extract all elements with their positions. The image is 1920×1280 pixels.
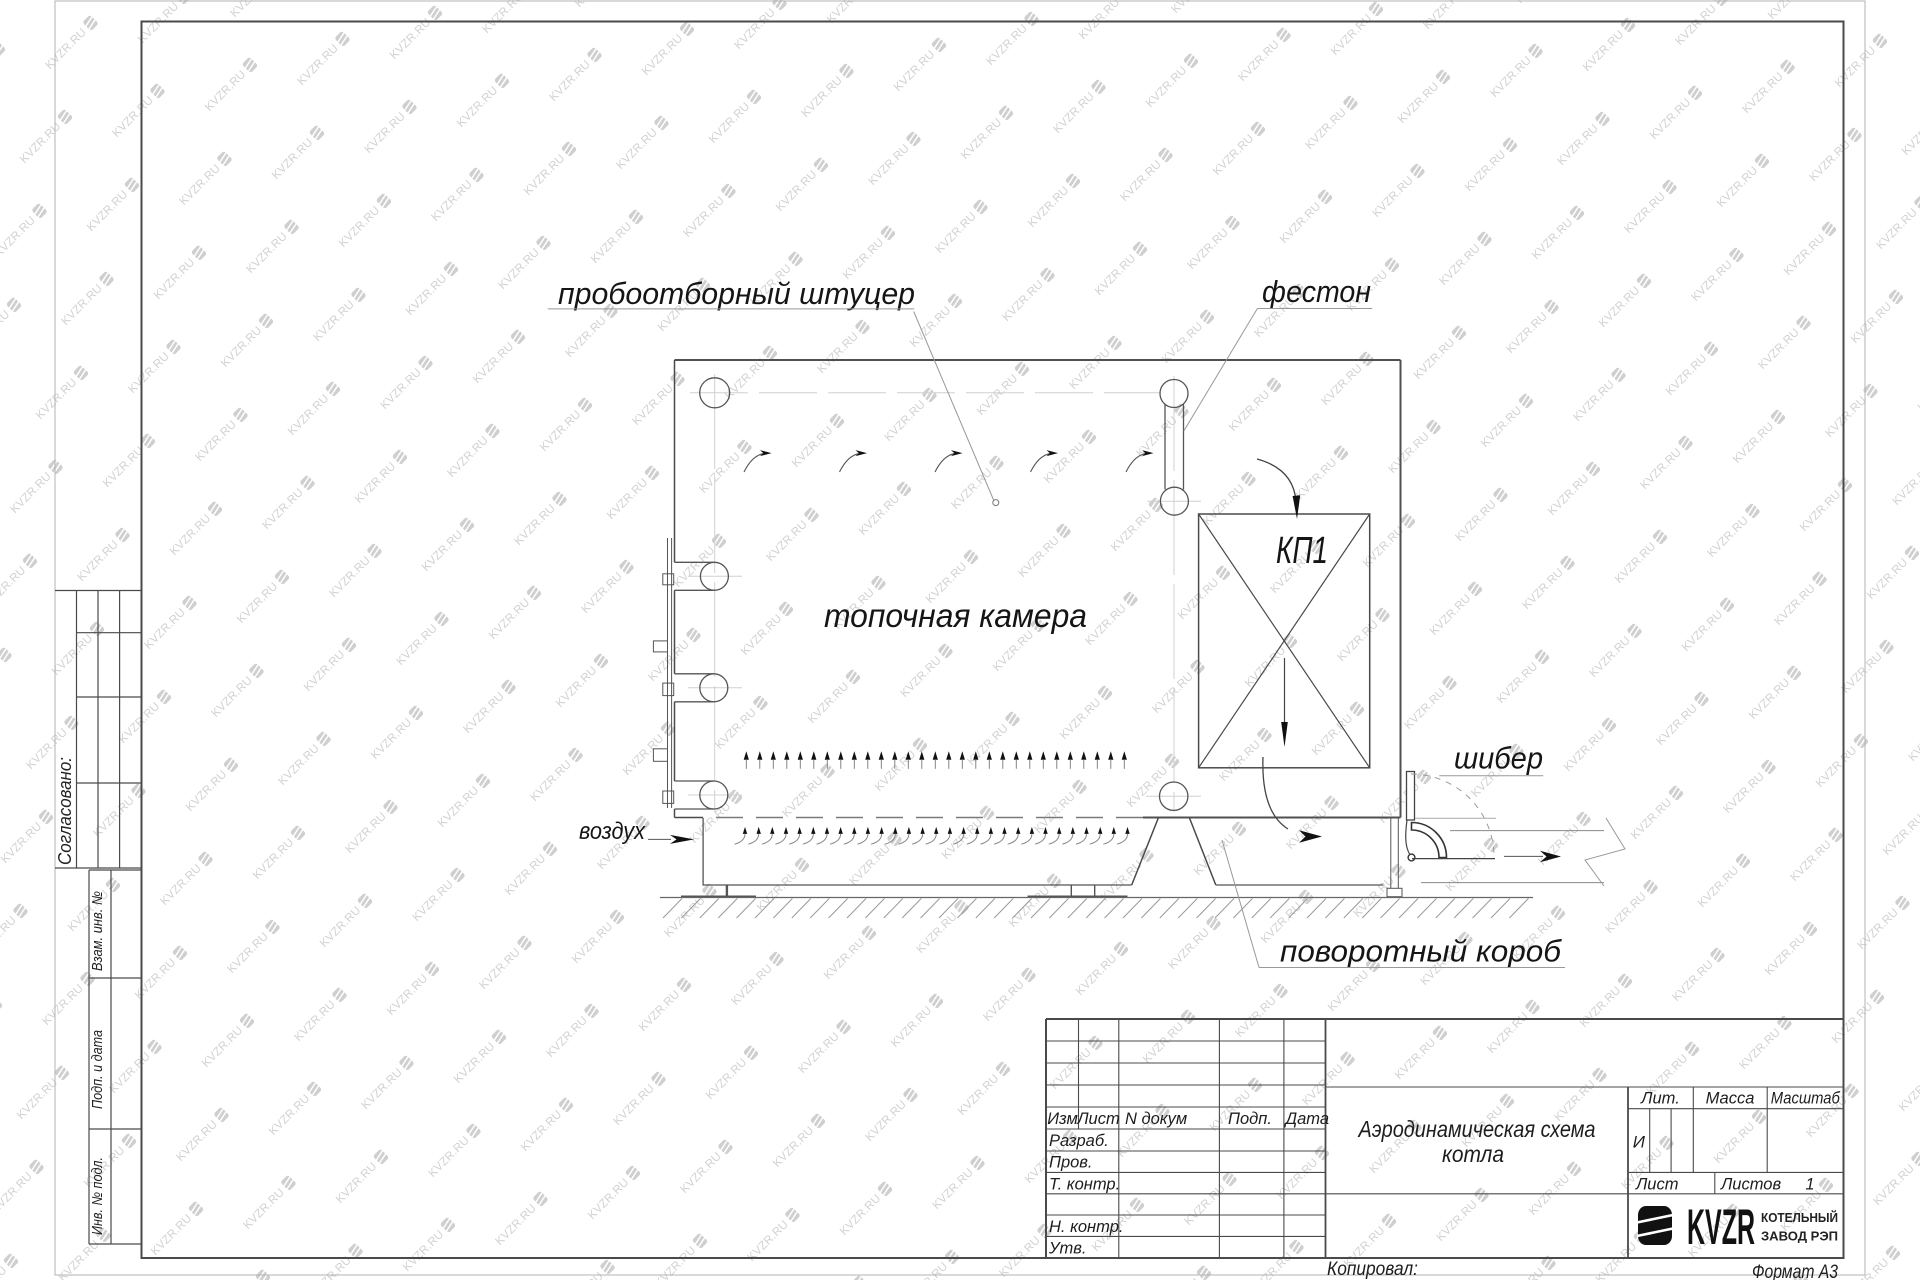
svg-text:И: И: [1633, 1133, 1646, 1152]
svg-text:шибер: шибер: [1454, 741, 1543, 776]
svg-text:поворотный короб: поворотный короб: [1280, 934, 1563, 969]
svg-text:фестон: фестон: [1262, 274, 1371, 309]
svg-text:Масштаб: Масштаб: [1771, 1090, 1841, 1108]
svg-text:KVZR: KVZR: [1687, 1199, 1755, 1255]
svg-text:КП1: КП1: [1276, 530, 1328, 572]
svg-text:Листов: Листов: [1720, 1176, 1781, 1194]
svg-text:Взам. инв. №: Взам. инв. №: [90, 891, 106, 971]
svg-text:Изм: Изм: [1047, 1110, 1078, 1128]
svg-text:Пров.: Пров.: [1049, 1154, 1093, 1172]
svg-text:Подп. и дата: Подп. и дата: [90, 1030, 106, 1109]
svg-text:Разраб.: Разраб.: [1049, 1132, 1109, 1150]
svg-text:N докум: N докум: [1125, 1110, 1187, 1128]
svg-text:Аэродинамическая схема: Аэродинамическая схема: [1357, 1116, 1596, 1142]
svg-text:топочная камера: топочная камера: [824, 597, 1087, 634]
svg-text:КОТЕЛЬНЫЙ: КОТЕЛЬНЫЙ: [1761, 1210, 1838, 1225]
svg-text:пробоотборный штуцер: пробоотборный штуцер: [558, 276, 915, 311]
svg-text:котла: котла: [1442, 1141, 1504, 1167]
svg-text:Согласовано:: Согласовано:: [55, 757, 75, 865]
svg-text:Лист: Лист: [1076, 1110, 1119, 1128]
svg-text:Копировал:: Копировал:: [1327, 1259, 1418, 1280]
svg-text:Формат А3: Формат А3: [1752, 1262, 1838, 1280]
svg-text:Масса: Масса: [1706, 1090, 1755, 1108]
svg-text:Т. контр.: Т. контр.: [1049, 1176, 1120, 1194]
svg-text:Лит.: Лит.: [1640, 1090, 1680, 1108]
svg-text:Дата: Дата: [1284, 1110, 1330, 1128]
svg-text:воздух: воздух: [579, 818, 646, 845]
svg-text:Лист: Лист: [1635, 1176, 1678, 1194]
svg-text:Н. контр.: Н. контр.: [1049, 1218, 1123, 1236]
svg-text:1: 1: [1805, 1176, 1814, 1194]
svg-text:Инв. № подл.: Инв. № подл.: [90, 1157, 106, 1235]
svg-text:Утв.: Утв.: [1048, 1240, 1087, 1258]
svg-text:ЗАВОД РЭП: ЗАВОД РЭП: [1761, 1229, 1838, 1244]
svg-text:Подп.: Подп.: [1228, 1110, 1272, 1128]
